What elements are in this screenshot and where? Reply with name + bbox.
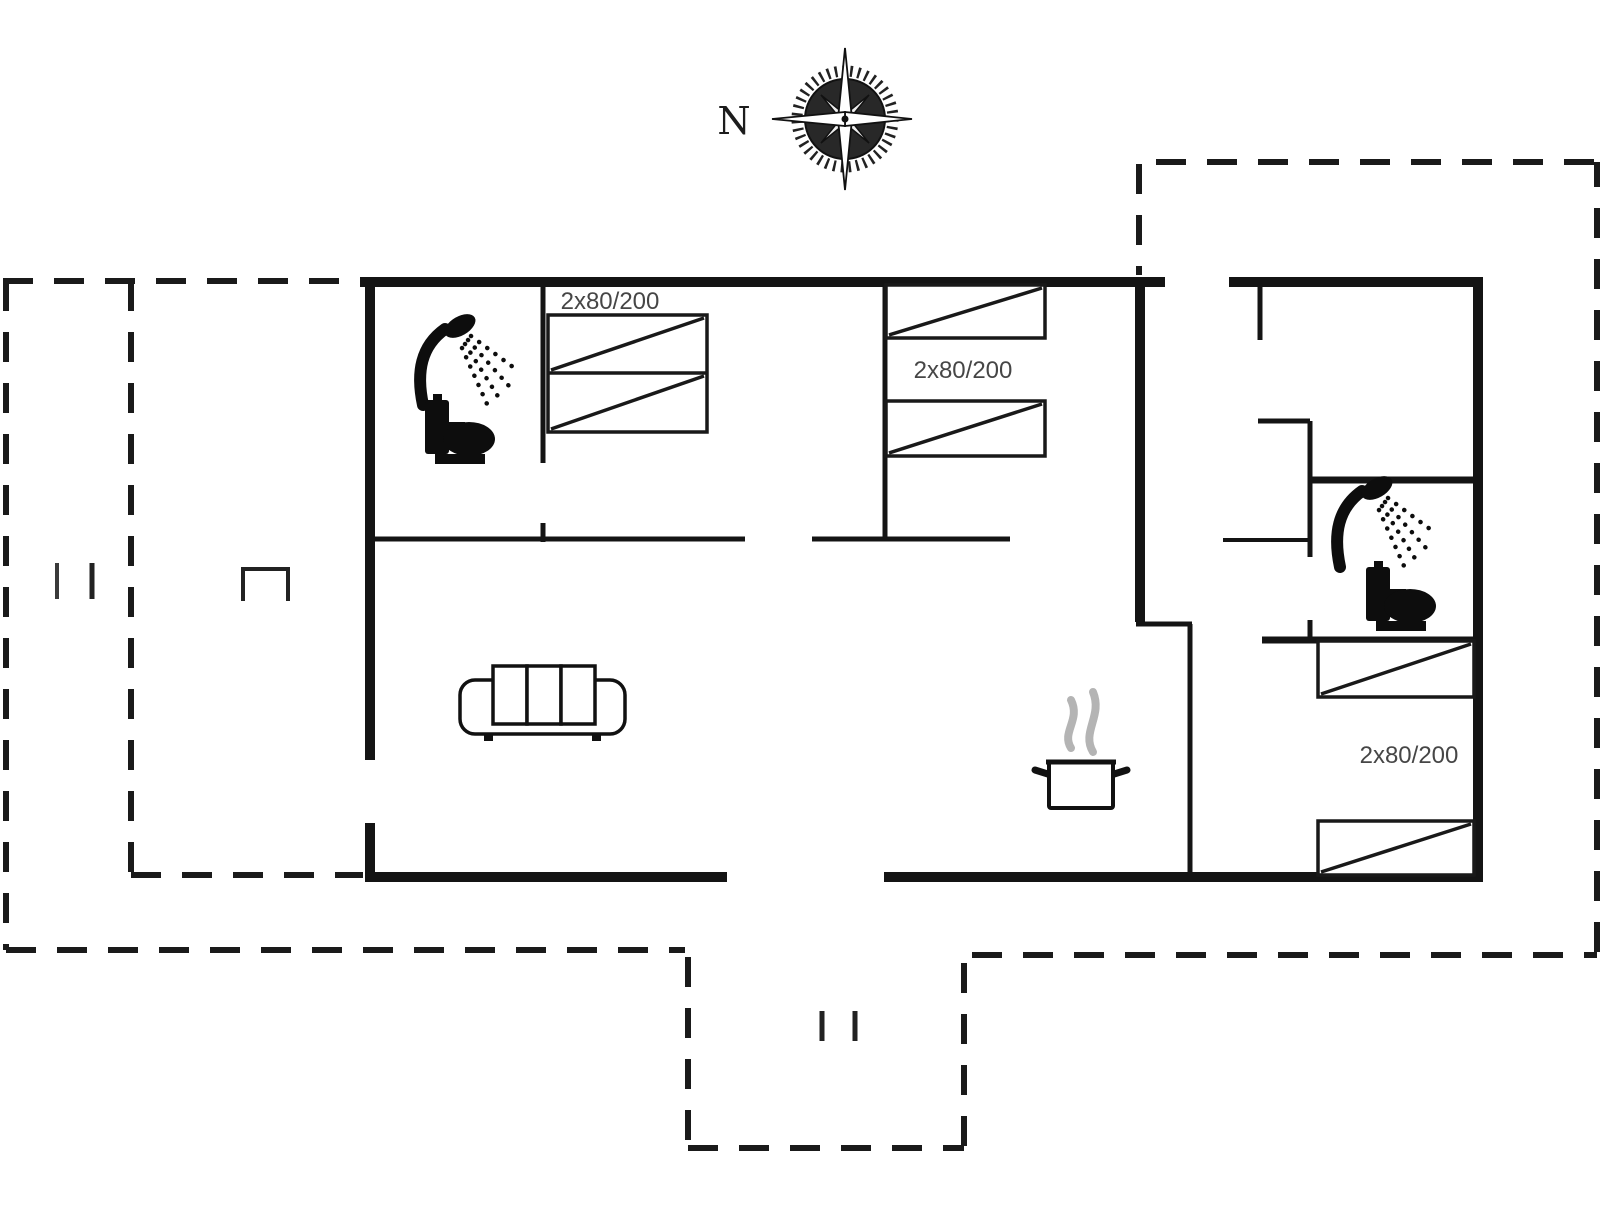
door-tick-marks-west-terrace — [57, 563, 92, 599]
bed-size-label-bedroom3: 2x80/200 — [1360, 742, 1459, 769]
toilet-icon — [425, 394, 495, 464]
door-tick-marks-south-terrace — [822, 1011, 855, 1041]
floor-plan-canvas: 2x80/200 2x80/200 2x80/200 N — [0, 0, 1606, 1205]
shower-icon — [1337, 471, 1434, 567]
bed-size-label-bedroom2: 2x80/200 — [914, 357, 1013, 384]
terrace-furniture-marker — [243, 569, 288, 601]
cooking-pot-icon — [1035, 692, 1127, 808]
bathroom2-fixtures — [1337, 471, 1436, 631]
shower-icon — [420, 309, 517, 405]
compass-center — [842, 116, 849, 123]
bed-size-label-bedroom1: 2x80/200 — [561, 288, 660, 315]
toilet-icon — [1366, 561, 1436, 631]
open-square-marker — [243, 569, 288, 601]
sofa-icon — [460, 666, 625, 741]
terrace-outline-south — [688, 955, 964, 1148]
bathroom1-fixtures — [420, 309, 517, 464]
north-label: N — [717, 99, 750, 143]
compass-rose-icon — [772, 48, 912, 190]
bunk-bed-bedroom1 — [548, 315, 707, 432]
floor-plan-page: 2x80/200 2x80/200 2x80/200 N — [0, 0, 1606, 1205]
